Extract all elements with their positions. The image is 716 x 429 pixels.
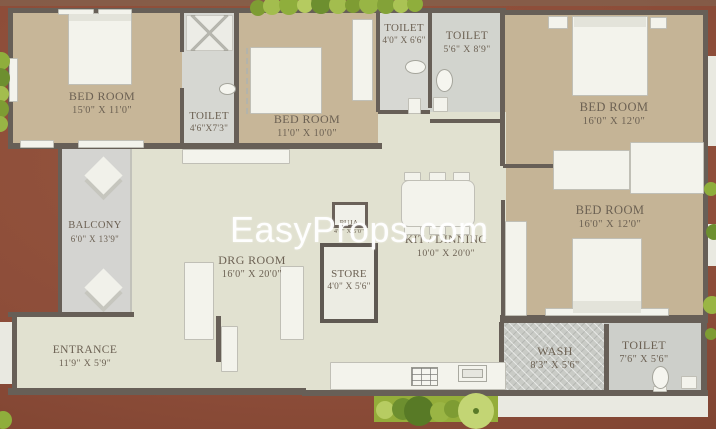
room-name: BALCONY bbox=[62, 220, 128, 233]
wc bbox=[436, 69, 453, 92]
room-dims: 7'6" X 5'6" bbox=[604, 354, 684, 366]
room-label-bedroom-4: BED ROOM 16'0" X 12'0" bbox=[556, 203, 664, 232]
room-label-wash: WASH 8'3" X 5'6" bbox=[516, 344, 594, 372]
chair bbox=[429, 172, 446, 181]
room-label-toilet-3: TOILET 5'6" X 8'9" bbox=[433, 29, 501, 56]
room-dims: 16'0" X 12'0" bbox=[556, 219, 664, 232]
room-name: TOILET bbox=[377, 22, 431, 35]
room-dims: 8'3" X 5'6" bbox=[516, 360, 594, 372]
bottom-ledge bbox=[498, 394, 708, 417]
room-name: BED ROOM bbox=[48, 89, 156, 104]
window bbox=[9, 58, 18, 102]
kitchen-sink bbox=[458, 365, 487, 382]
watermark: EasyProps.com bbox=[230, 209, 489, 251]
bed-pillow bbox=[69, 14, 131, 21]
room-dims: 6'0" X 13'9" bbox=[62, 234, 128, 245]
room-label-bedroom-2: BED ROOM 11'0" X 10'0" bbox=[252, 112, 362, 140]
wardrobe-dashed bbox=[246, 48, 248, 114]
room-name: TOILET bbox=[433, 29, 501, 43]
room-dims: 16'0" X 12'0" bbox=[560, 116, 668, 129]
room-dims: 11'9" X 5'9" bbox=[30, 358, 140, 370]
room-label-toilet-2: TOILET 4'0" X 6'6" bbox=[377, 22, 431, 48]
room-dims: 11'0" X 10'0" bbox=[252, 128, 362, 140]
room-name: TOILET bbox=[604, 338, 684, 353]
room-label-store: STORE 4'0" X 5'6" bbox=[320, 268, 378, 294]
bed bbox=[572, 16, 648, 96]
bed bbox=[68, 13, 132, 85]
wall bbox=[430, 119, 504, 123]
right-sill-top bbox=[708, 56, 716, 146]
wall bbox=[378, 110, 430, 114]
window bbox=[78, 140, 144, 148]
chair bbox=[404, 172, 421, 181]
floor-drain bbox=[408, 98, 421, 114]
wall bbox=[503, 10, 708, 15]
room-label-toilet-4: TOILET 7'6" X 5'6" bbox=[604, 338, 684, 366]
wardrobe bbox=[505, 221, 527, 316]
door-leaf bbox=[221, 326, 238, 372]
room-label-drg-room: DRG ROOM 16'0" X 20'0" bbox=[198, 253, 306, 281]
room-name: TOILET bbox=[182, 110, 236, 123]
plant-bush bbox=[705, 328, 716, 340]
room-label-toilet-1: TOILET 4'6"X7'3" bbox=[182, 110, 236, 136]
wall bbox=[302, 390, 708, 396]
side-table bbox=[548, 16, 568, 29]
room-name: DRG ROOM bbox=[198, 253, 306, 268]
room-name: ENTRANCE bbox=[30, 343, 140, 357]
wall bbox=[180, 8, 184, 52]
room-label-bedroom-3: BED ROOM 16'0" X 12'0" bbox=[560, 100, 668, 129]
room-name: BED ROOM bbox=[560, 100, 668, 115]
floorplan-photo: BED ROOM 15'0" X 11'0" TOILET 4'6"X7'3" … bbox=[0, 0, 716, 429]
bed-pillow bbox=[574, 17, 646, 27]
window bbox=[20, 140, 54, 148]
tree-center bbox=[473, 408, 479, 414]
sofa bbox=[182, 149, 290, 164]
wall bbox=[8, 312, 134, 317]
wc bbox=[652, 366, 669, 389]
wall bbox=[8, 388, 306, 395]
washbasin bbox=[681, 376, 697, 389]
wardrobe bbox=[630, 142, 704, 194]
bed bbox=[250, 47, 322, 114]
room-dims: 4'6"X7'3" bbox=[182, 124, 236, 135]
plant-bush bbox=[703, 296, 716, 314]
wardrobe bbox=[352, 19, 373, 101]
room-name: BED ROOM bbox=[556, 203, 664, 218]
room-dims: 15'0" X 11'0" bbox=[48, 105, 156, 117]
chair bbox=[453, 172, 470, 181]
wc-tank bbox=[433, 97, 448, 112]
room-name: WASH bbox=[516, 344, 594, 359]
room-label-entrance: ENTRANCE 11'9" X 5'9" bbox=[30, 343, 140, 370]
washbasin bbox=[219, 83, 236, 95]
room-name: STORE bbox=[320, 268, 378, 281]
bed-pillow bbox=[573, 301, 641, 313]
wall bbox=[12, 316, 17, 390]
room-label-balcony: BALCONY 6'0" X 13'9" bbox=[62, 220, 128, 245]
room-dims: 4'0" X 6'6" bbox=[377, 36, 431, 47]
washbasin bbox=[405, 60, 426, 74]
side-table bbox=[650, 17, 667, 29]
stove bbox=[411, 367, 438, 386]
room-name: BED ROOM bbox=[252, 112, 362, 127]
room-dims: 16'0" X 20'0" bbox=[198, 269, 306, 281]
plant-bush bbox=[704, 182, 716, 196]
shower-tile bbox=[186, 15, 233, 51]
wardrobe bbox=[553, 150, 630, 190]
plant-bush bbox=[706, 224, 716, 240]
wall bbox=[500, 315, 708, 323]
room-dims: 5'6" X 8'9" bbox=[433, 44, 501, 56]
room-label-bedroom-1: BED ROOM 15'0" X 11'0" bbox=[48, 89, 156, 117]
room-dims: 4'0" X 5'6" bbox=[320, 282, 378, 293]
